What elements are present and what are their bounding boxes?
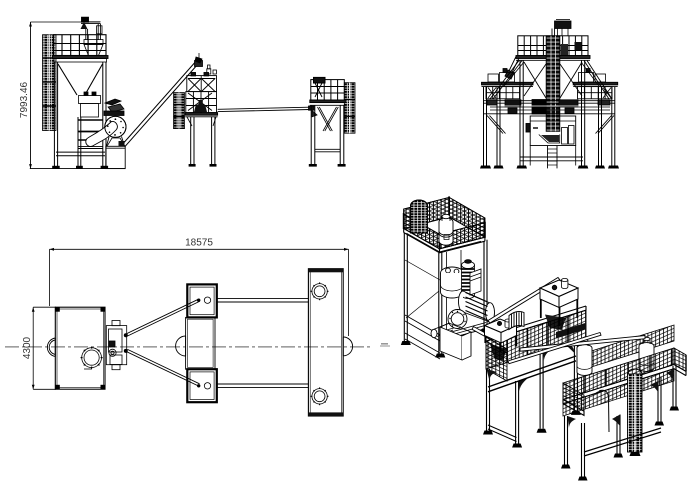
- svg-text:4300: 4300: [22, 336, 33, 359]
- svg-text:7993.46: 7993.46: [19, 81, 30, 118]
- svg-text:18575: 18575: [185, 238, 213, 249]
